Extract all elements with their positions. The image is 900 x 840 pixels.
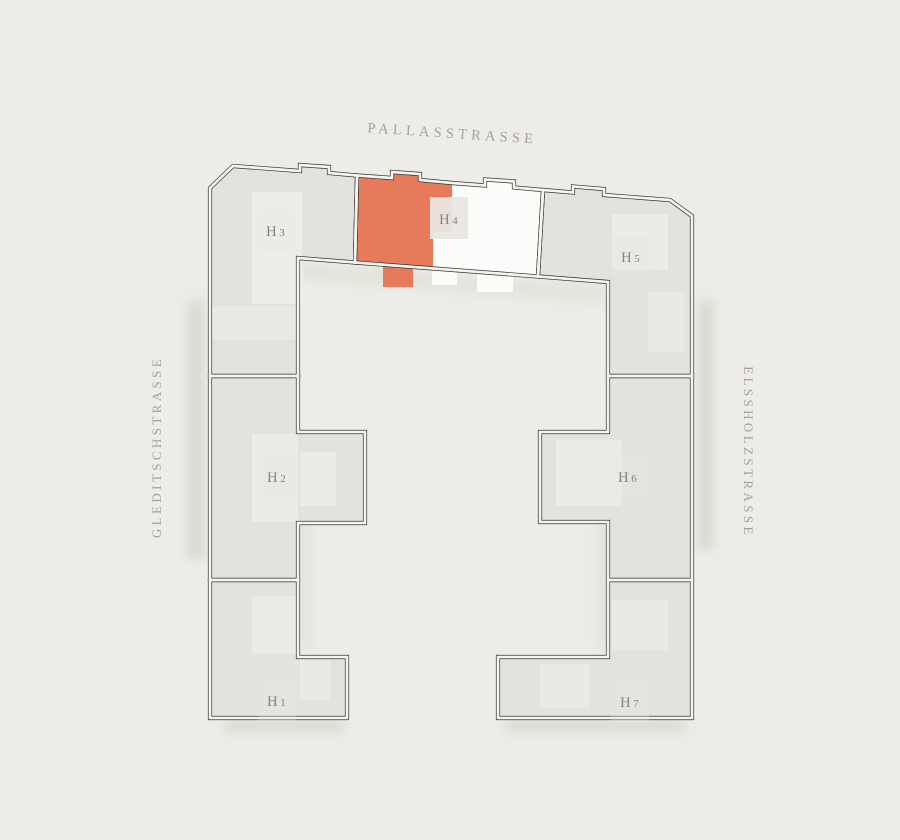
house-h2-label: H2 [267,470,287,486]
street-label-elssholzstrasse: ELSSHOLZSTRASSE [741,366,756,538]
house-h1-label: H1 [267,694,287,710]
house-h6-label: H6 [618,470,638,486]
site-plan-svg: H3H4H5H2H6H1H7 PALLASSTRASSE GLEDITSCHST… [0,0,900,840]
house-h7-label: H7 [620,695,640,711]
house-h4-label: H4 [439,212,459,228]
street-label-gleditschstrasse: GLEDITSCHSTRASSE [149,356,164,538]
site-plan: H3H4H5H2H6H1H7 PALLASSTRASSE GLEDITSCHST… [0,0,900,840]
house-h5-label: H5 [621,250,641,266]
house-h3-label: H3 [266,224,286,240]
